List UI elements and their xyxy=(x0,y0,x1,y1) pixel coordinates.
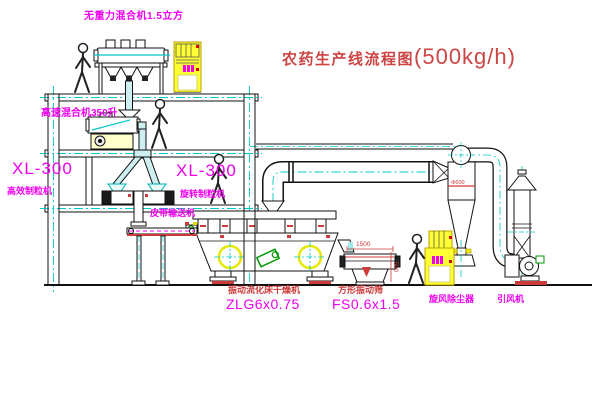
dim-cyclone-note: Φ600 xyxy=(451,180,465,186)
label-dryer-name: 振动流化床干燥机 xyxy=(228,286,300,295)
bucket-elevator-machine-2 xyxy=(425,231,454,285)
diagram-title: 农药生产线流程图(500kg/h) xyxy=(282,44,516,70)
label-granulator-right-model: XL-300 xyxy=(176,162,237,179)
bucket-elevator-machine-1 xyxy=(174,42,201,94)
label-screen-model: FS0.6x1.5 xyxy=(332,297,400,311)
label-dryer-model: ZLG6x0.75 xyxy=(226,297,300,311)
label-granulator-right-name: 旋转制粒机 xyxy=(180,190,225,199)
label-screen-name: 方形振动筛 xyxy=(338,286,383,295)
label-granulator-left-name: 高效制粒机 xyxy=(7,187,52,196)
pesticide-line-diagram: 1500 500 Φ600 农药生产线流程图(500kg/h) 无重力混合机1.… xyxy=(0,0,600,403)
label-cyclone: 旋风除尘器 xyxy=(429,295,474,304)
dim-screen-height: 500 xyxy=(392,262,398,273)
label-top-mixer: 无重力混合机1.5立方 xyxy=(84,12,183,22)
dim-screen-length: 1500 xyxy=(356,241,371,248)
label-high-speed-mixer: 高速混合机350升 xyxy=(41,109,118,119)
label-belt-conveyor: 皮带输送机 xyxy=(150,209,195,218)
label-granulator-left-model: XL-300 xyxy=(12,160,73,177)
label-fan: 引风机 xyxy=(497,295,524,304)
mixer-discharge-pipe xyxy=(126,81,133,114)
title-capacity: (500kg/h) xyxy=(414,44,516,69)
title-chinese: 农药生产线流程图 xyxy=(282,51,414,68)
inner-column xyxy=(86,157,92,205)
